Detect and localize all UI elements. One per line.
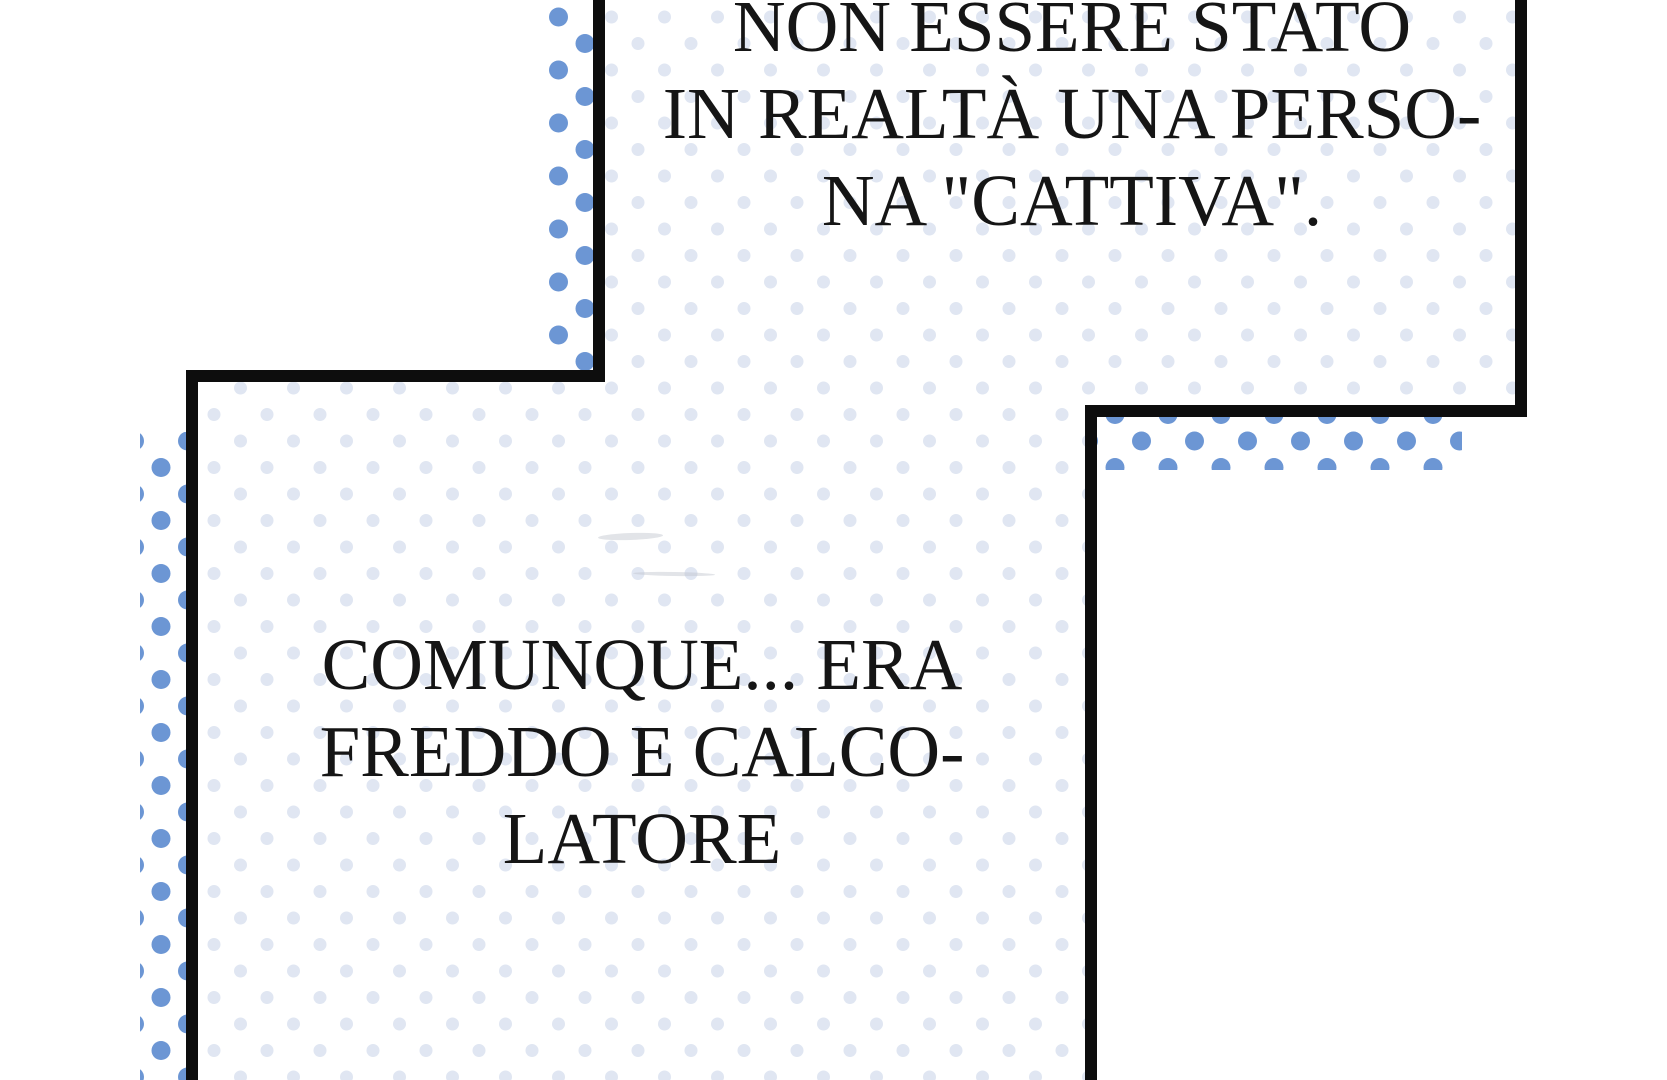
dialogue-text-top-panel: NON ESSERE STATO IN REALTÀ UNA PERSO- NA… xyxy=(619,0,1525,244)
dialogue-line: NA "CATTIVA". xyxy=(619,157,1525,244)
dialogue-text-bottom-panel: COMUNQUE... ERA FREDDO E CALCO- LATORE xyxy=(198,621,1086,882)
dialogue-line: NON ESSERE STATO xyxy=(619,0,1525,70)
halftone-band-left-gutter xyxy=(140,432,192,1080)
dialogue-line: COMUNQUE... ERA xyxy=(198,621,1086,708)
halftone-band-right-gutter xyxy=(1097,415,1462,470)
dialogue-line: IN REALTÀ UNA PERSO- xyxy=(619,70,1525,157)
halftone-band-top-left-gutter xyxy=(546,0,599,376)
comic-page: NON ESSERE STATO IN REALTÀ UNA PERSO- NA… xyxy=(0,0,1667,1080)
dialogue-line: FREDDO E CALCO- xyxy=(198,708,1086,795)
dialogue-line: LATORE xyxy=(198,795,1086,882)
